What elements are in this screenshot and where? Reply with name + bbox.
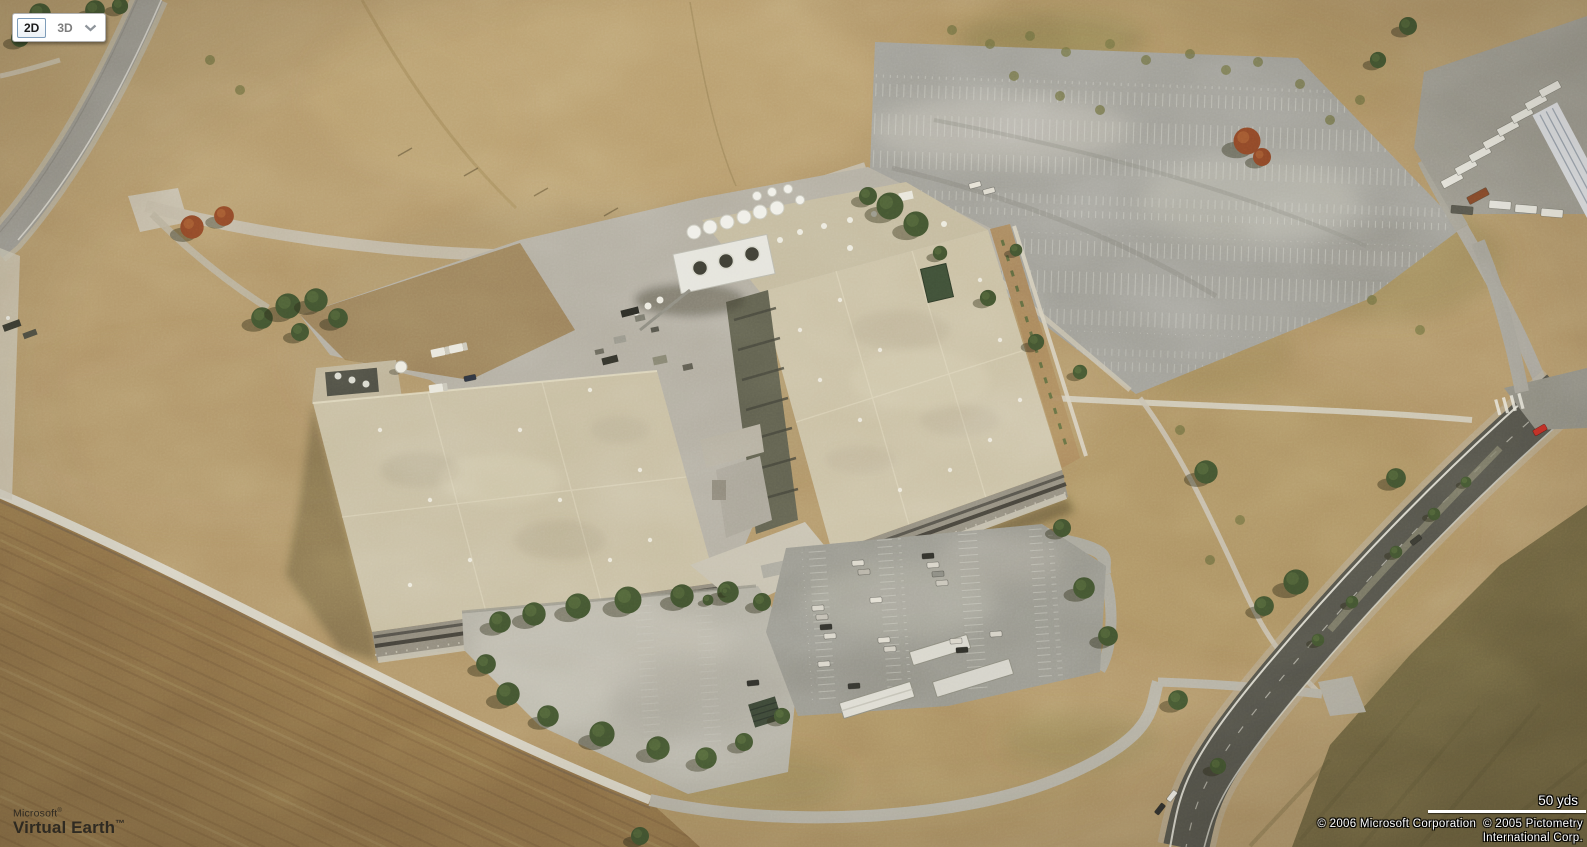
trademark-mark: ™	[115, 819, 125, 830]
map-3d-button[interactable]: 3D	[54, 19, 75, 37]
attribution-line1: © 2006 Microsoft Corporation © 2005 Pict…	[1317, 818, 1583, 832]
virtual-earth-app: 2D 3D Microsoft® Virtual Earth™ 50 yds ©…	[0, 0, 1587, 847]
registered-mark: ®	[57, 807, 62, 814]
view-mode-toggle[interactable]: 2D 3D	[12, 13, 106, 42]
virtual-earth-logo: Microsoft® Virtual Earth™	[13, 808, 125, 837]
copyright-attribution: © 2006 Microsoft Corporation © 2005 Pict…	[1317, 818, 1583, 845]
chevron-down-icon[interactable]	[84, 24, 97, 32]
map-2d-button[interactable]: 2D	[17, 18, 46, 38]
map-scale: 50 yds	[1428, 793, 1586, 814]
attribution-line2: International Corp.	[1317, 832, 1583, 846]
map-canvas[interactable]	[0, 0, 1587, 847]
scale-label: 50 yds	[1428, 793, 1586, 808]
logo-product: Virtual Earth™	[13, 819, 125, 837]
scale-bar-line	[1428, 810, 1586, 814]
